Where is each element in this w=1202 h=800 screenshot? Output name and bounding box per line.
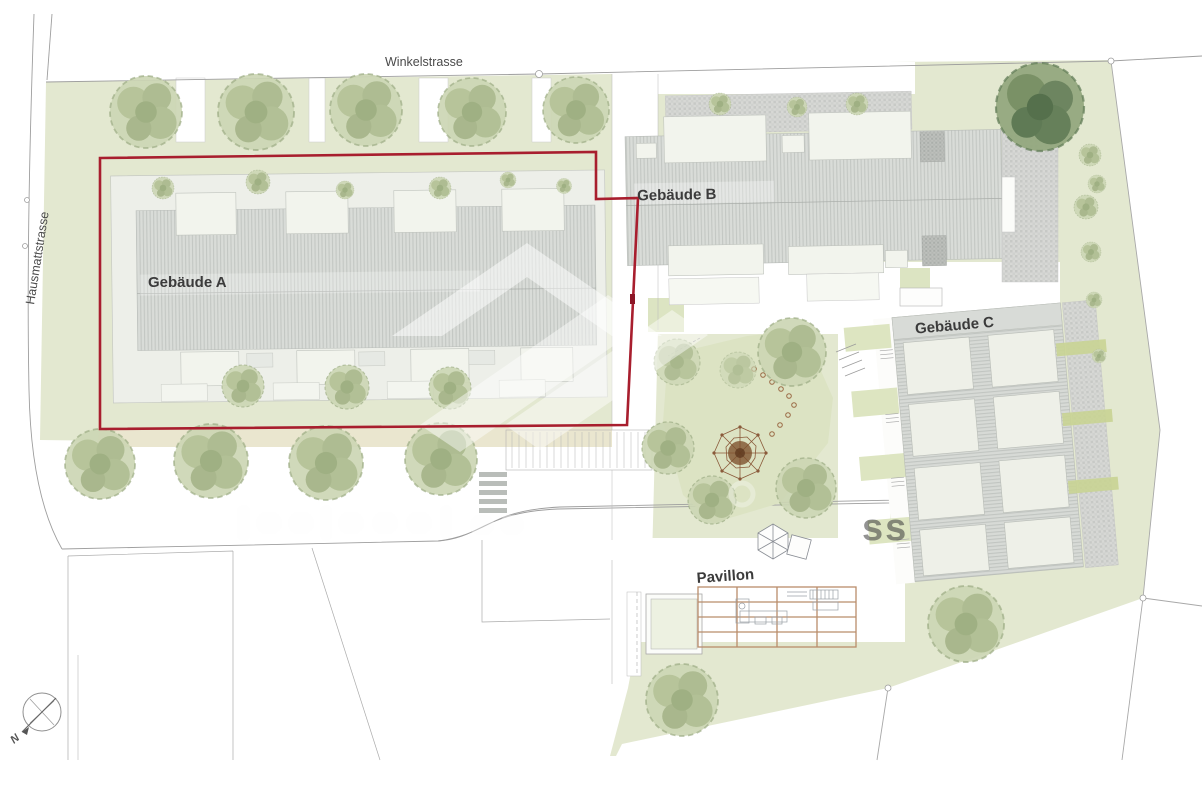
plaza-gravel xyxy=(1002,130,1058,282)
shed xyxy=(646,594,702,654)
street-verge xyxy=(658,62,915,94)
large-dark-tree xyxy=(996,63,1084,151)
pedestrian-crossing xyxy=(479,472,507,513)
label-building-a: Gebäude A xyxy=(148,274,227,291)
compass-icon: N xyxy=(8,693,61,746)
site-plan-canvas: ss Winkelstrasse Hausmattstrasse Gebäude… xyxy=(0,0,1202,800)
compass-north-label: N xyxy=(8,731,23,746)
street-label-winkelstrasse: Winkelstrasse xyxy=(385,55,463,69)
watermark-text-fragment: ss xyxy=(862,507,908,549)
label-building-b: Gebäude B xyxy=(637,186,717,205)
site-plan: ss Winkelstrasse Hausmattstrasse Gebäude… xyxy=(0,0,1202,800)
